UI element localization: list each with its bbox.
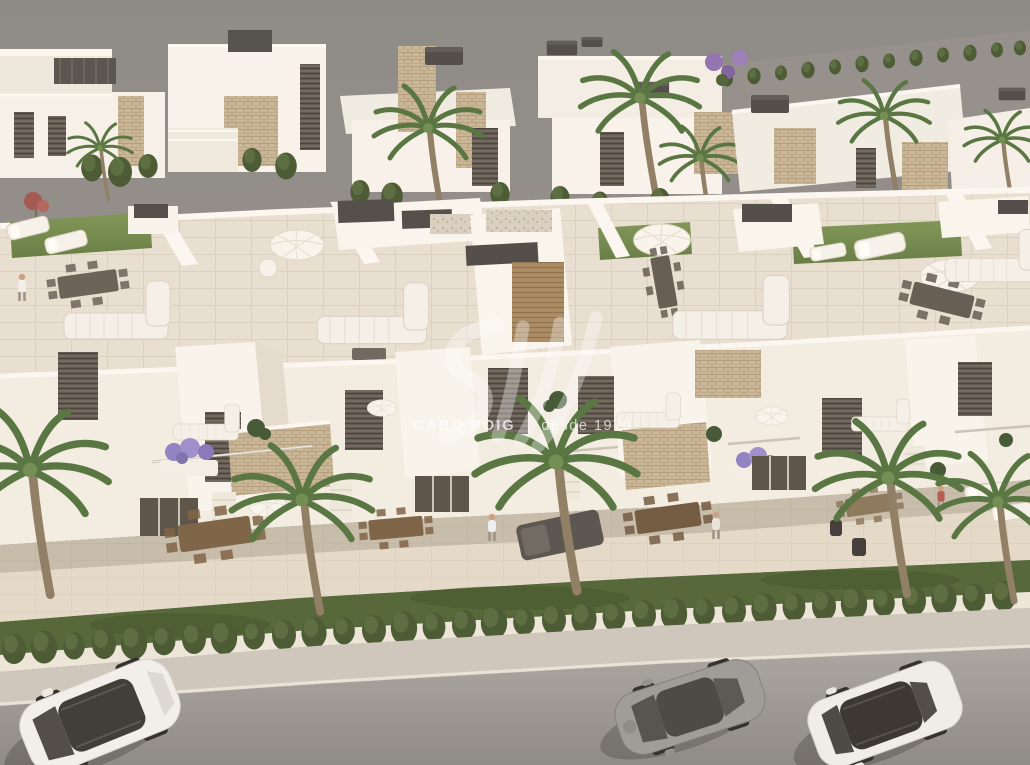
- watermark-brand: CABO ROIG: [414, 418, 516, 434]
- villa-development-scene: CABO ROIG | desde 1970: [0, 0, 1030, 765]
- render-image: CABO ROIG | desde 1970: [0, 0, 1030, 765]
- watermark-tagline: desde 1970: [541, 418, 632, 434]
- watermark-separator: |: [527, 418, 531, 434]
